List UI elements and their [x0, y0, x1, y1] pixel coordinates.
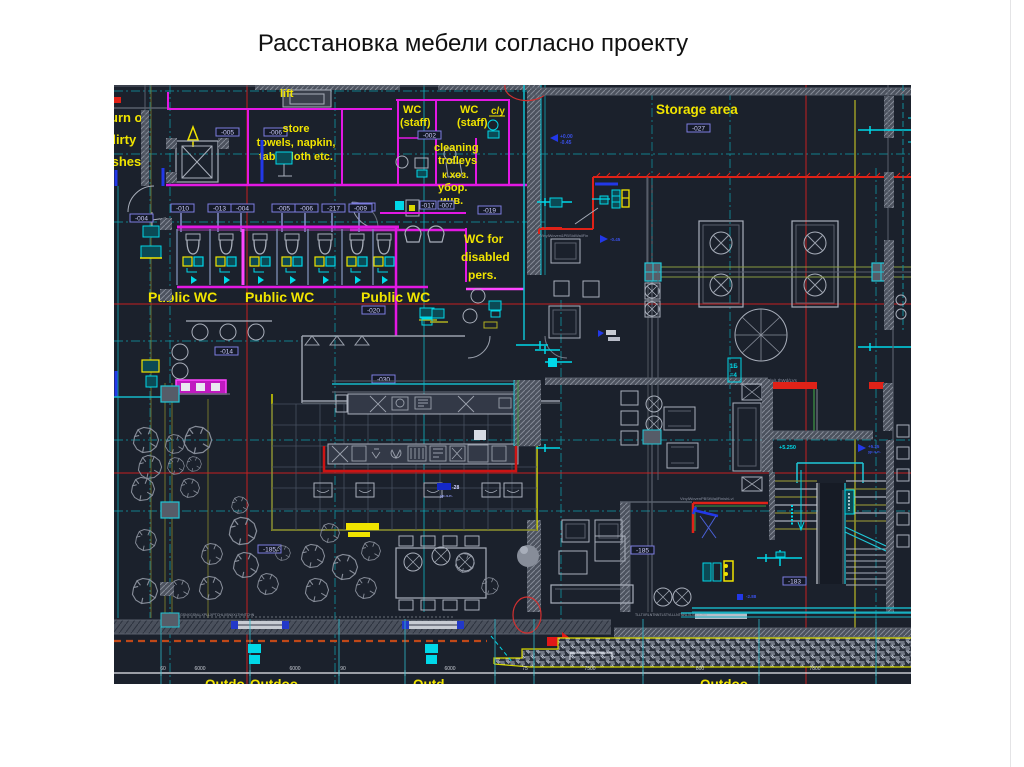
svg-text:-183: -183 [788, 579, 801, 586]
svg-text:-217: -217 [327, 206, 340, 213]
svg-text:dirty: dirty [114, 132, 137, 147]
svg-text:-007: -007 [439, 203, 452, 210]
svg-text:ур.ч.п.: ур.ч.п. [868, 449, 881, 454]
svg-text:ур.ч.п.: ур.ч.п. [440, 493, 453, 498]
svg-text:VinylWovenPBStWallFinishLvl: VinylWovenPBStWallFinishLvl [680, 496, 734, 501]
svg-text:-005: -005 [277, 206, 290, 213]
svg-text:ishes: ishes [114, 154, 141, 169]
svg-text:6000: 6000 [444, 666, 455, 672]
svg-text:lift: lift [280, 88, 294, 100]
svg-text:disabled: disabled [461, 250, 510, 264]
svg-text:tablecloth etc.: tablecloth etc. [259, 151, 333, 163]
svg-text:убор.: убор. [438, 182, 467, 194]
svg-text:towels, napkin,: towels, napkin, [257, 137, 336, 149]
svg-text:1Б: 1Б [730, 364, 738, 370]
svg-text:Outdo: Outdo [205, 677, 245, 684]
svg-text:-006: -006 [269, 130, 282, 137]
svg-text:-2.88: -2.88 [746, 594, 757, 599]
svg-text:-0.45: -0.45 [560, 140, 572, 146]
svg-text:WC for: WC for [464, 232, 504, 246]
svg-text:-185: -185 [636, 548, 649, 555]
svg-text:-0.45: -0.45 [610, 237, 621, 242]
svg-text:WC: WC [403, 104, 421, 116]
svg-text:800: 800 [696, 666, 705, 672]
svg-text:-005: -005 [221, 130, 234, 137]
svg-text:(staff): (staff) [457, 117, 488, 129]
svg-text:pers.: pers. [468, 268, 497, 282]
svg-text:c/y: c/y [491, 106, 505, 117]
svg-text:Outdoo: Outdoo [250, 677, 298, 684]
svg-text:-017: -017 [421, 203, 434, 210]
svg-text:Outdoo: Outdoo [700, 677, 748, 684]
svg-text:-185: -185 [263, 547, 276, 554]
svg-text:-013: -013 [213, 206, 226, 213]
svg-text:+5.250: +5.250 [779, 445, 796, 451]
svg-text:Storage area: Storage area [656, 102, 738, 117]
svg-text:7500: 7500 [584, 666, 595, 672]
svg-text:-009: -009 [354, 206, 367, 213]
svg-text:-010: -010 [176, 206, 189, 213]
svg-text:к хоз.: к хоз. [442, 170, 469, 181]
svg-text:-020: -020 [367, 308, 380, 315]
svg-text:-006: -006 [300, 206, 313, 213]
svg-text:Outd: Outd [413, 677, 445, 684]
svg-text:-002: -002 [423, 133, 436, 140]
svg-text:-030: -030 [377, 377, 390, 384]
svg-text:90: 90 [340, 666, 346, 672]
svg-text:-28: -28 [452, 485, 459, 491]
svg-text:6000: 6000 [194, 666, 205, 672]
svg-text:cleaning: cleaning [434, 142, 479, 154]
svg-text:=4: =4 [730, 373, 738, 379]
svg-text:VinylWoven&PBStdWallFin: VinylWoven&PBStdWallFin [540, 233, 588, 238]
svg-text:6000: 6000 [289, 666, 300, 672]
svg-text:-027: -027 [692, 126, 705, 133]
svg-text:Public WC: Public WC [361, 289, 430, 305]
svg-text:Public WC: Public WC [245, 289, 314, 305]
svg-text:60: 60 [160, 666, 166, 672]
svg-text:Public WC: Public WC [148, 289, 217, 305]
svg-text:WC: WC [460, 104, 478, 116]
svg-text:-014: -014 [220, 349, 233, 356]
svg-text:TLLTXRLNTNNTLSTVLLLNTNNLXLSNTC: TLLTXRLNTNNTLSTVLLLNTNNLXLSNTCHN [635, 613, 707, 617]
svg-text:-004: -004 [135, 216, 148, 223]
svg-text:FLGSNXGSNLLXPLLXPTCHLXSNXXLTHN: FLGSNXGSNLLXPLLXPTCHLXSNXXLTHNTCHN [176, 613, 255, 617]
svg-text:7800: 7800 [809, 666, 820, 672]
svg-text:75: 75 [522, 666, 528, 672]
svg-text:trolleys: trolleys [438, 155, 477, 167]
svg-text:-004: -004 [236, 206, 249, 213]
svg-text:(staff): (staff) [400, 117, 431, 129]
svg-text:-019: -019 [483, 208, 496, 215]
svg-text:store: store [283, 123, 310, 135]
